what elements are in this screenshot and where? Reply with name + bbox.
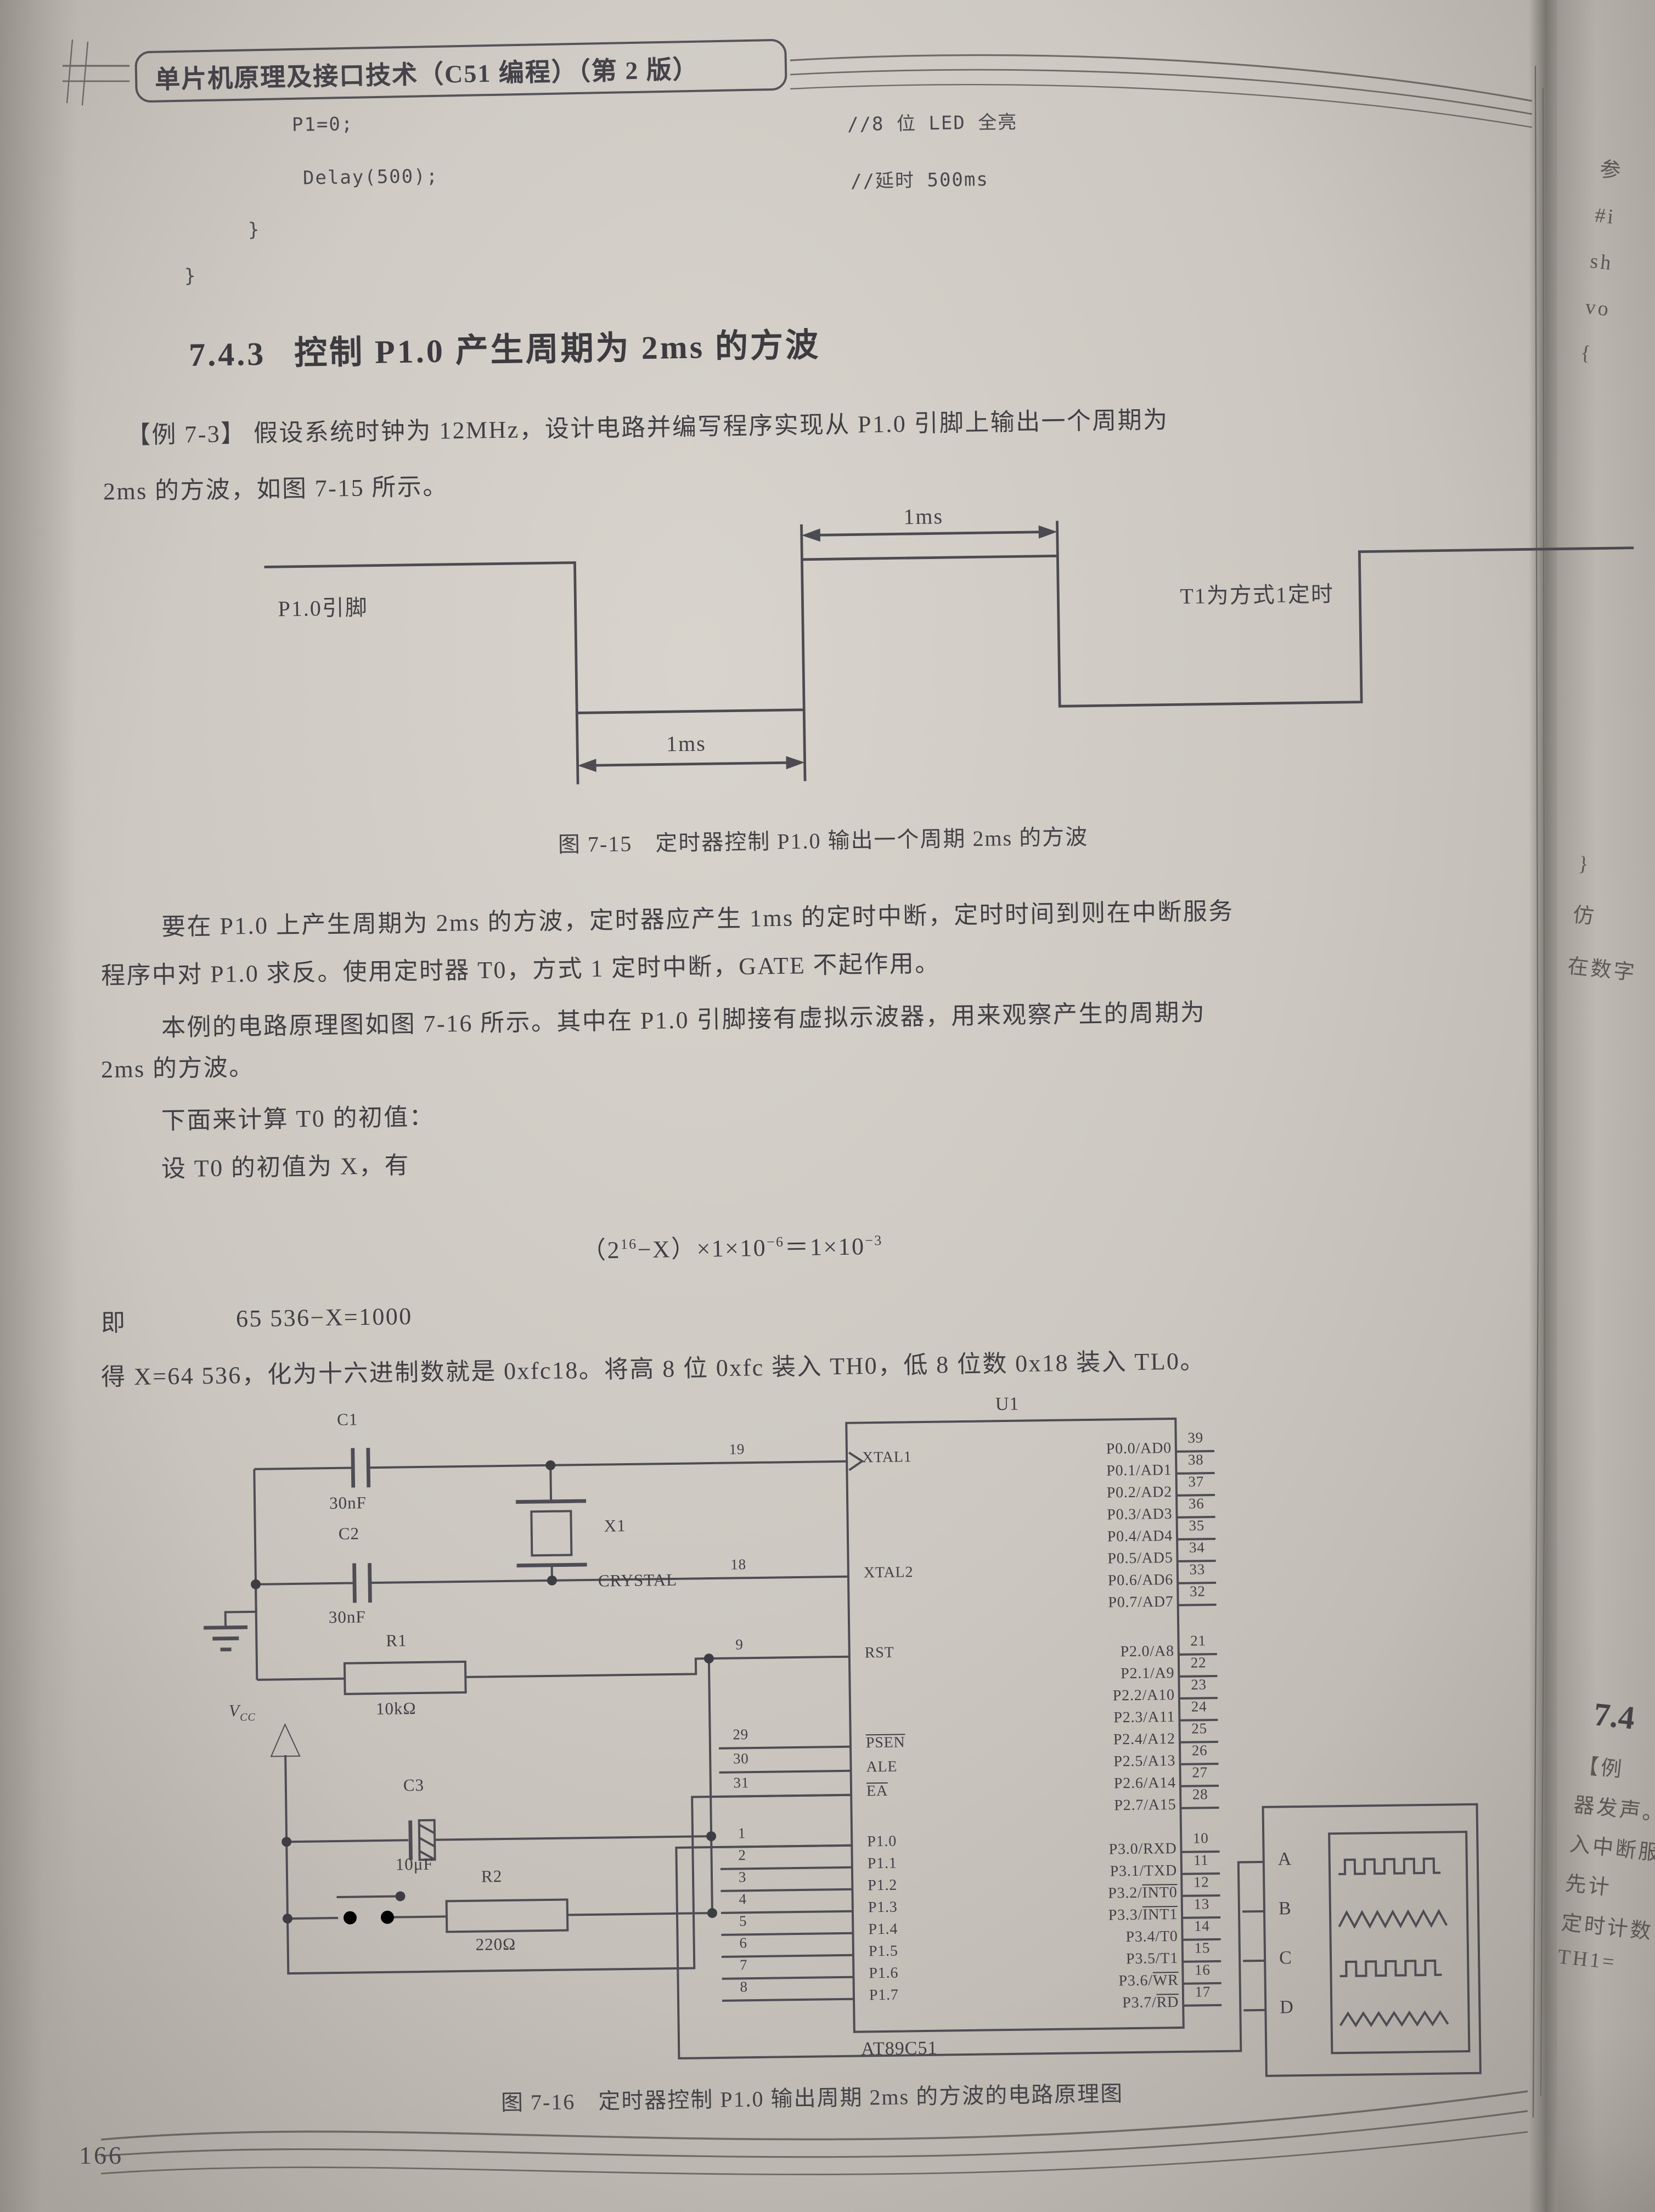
page-number: 166 [79, 2142, 123, 2170]
pin-name: P2.0/A8 [1032, 1644, 1174, 1663]
pin-number: 27 [1182, 1764, 1217, 1782]
pin-name: B [1279, 1898, 1303, 1920]
figure-7-15-waveform: P1.0引脚 T1为方式1定时 1ms 1ms [261, 504, 1643, 817]
para1-line-4: 2ms 的方波。 [101, 1048, 255, 1085]
next-page-fragment: 定时计数 [1560, 1906, 1655, 1945]
pin-name: P2.1/A9 [1032, 1666, 1174, 1685]
pin-number: 1 [722, 1825, 762, 1843]
vcc-label: VCC [229, 1702, 256, 1724]
pin-name: P0.2/AD2 [1029, 1485, 1172, 1504]
pin-number: 9 [719, 1636, 759, 1654]
pin-name: A [1277, 1848, 1302, 1871]
photographed-book-page: 单片机原理及接口技术（C51 编程）（第 2 版） P1=0; Delay(50… [0, 0, 1655, 2212]
x1-value: CRYSTAL [598, 1571, 678, 1592]
formula-exponent: −6 [767, 1233, 785, 1250]
pin-number: 37 [1179, 1473, 1214, 1491]
pin-name: P3.5/T1 [1035, 1951, 1178, 1970]
pin-name: P1.3 [868, 1898, 1000, 1917]
pin-number: 17 [1185, 1983, 1220, 2001]
code-line-2: Delay(500); [303, 166, 439, 189]
pin-number: 35 [1179, 1517, 1214, 1535]
vcc-v: V [229, 1702, 240, 1720]
pin-name: P0.3/AD3 [1029, 1506, 1172, 1526]
pin-name: P0.1/AD1 [1029, 1463, 1172, 1482]
pin-name: ALE [866, 1758, 998, 1777]
next-page-fragment: 入中断服 [1568, 1828, 1655, 1867]
next-page-fragment: #i [1594, 204, 1621, 231]
pin-number: 6 [723, 1934, 763, 1953]
figure-7-16-circuit: 19XTAL118XTAL29RST29PSEN30ALE31EA1P1.02P… [187, 1376, 1491, 2118]
pin-name: P0.7/AD7 [1031, 1594, 1173, 1613]
pin-number: 21 [1180, 1632, 1215, 1650]
pin-name: P0.4/AD4 [1030, 1528, 1173, 1548]
pin-name: PSEN [866, 1734, 998, 1753]
pin-name: C [1279, 1947, 1304, 1970]
chip-part-number: AT89C51 [861, 2038, 938, 2061]
code-comment-2: //延时 500ms [851, 163, 989, 193]
pin-name: P2.2/A10 [1032, 1688, 1175, 1707]
pin-number: 39 [1178, 1429, 1213, 1447]
pin-name: P1.4 [868, 1920, 1000, 1939]
pin-number: 16 [1185, 1961, 1220, 1979]
pin-number: 3 [723, 1869, 762, 1887]
r1-value: 10kΩ [376, 1700, 416, 1720]
pin-number: 25 [1181, 1720, 1217, 1738]
pin-number: 24 [1181, 1698, 1217, 1716]
pin-name: P3.3/INT1 [1035, 1907, 1178, 1926]
pin-name: P1.1 [868, 1854, 999, 1874]
pin-name: P2.6/A14 [1033, 1775, 1176, 1795]
pin-name: EA [866, 1782, 998, 1801]
book-spine-shadow [1529, 0, 1557, 2212]
example-line-2: 2ms 的方波，如图 7-15 所示。 [103, 467, 449, 507]
next-page-section-number: 7.4 [1592, 1696, 1637, 1737]
pin-number: 26 [1182, 1742, 1217, 1760]
pin-name: D [1280, 1996, 1304, 2019]
formula-exponent: −3 [865, 1232, 883, 1248]
pin-number: 14 [1184, 1917, 1219, 1936]
bottom-right-shading [1557, 2030, 1655, 2212]
c3-value: 10μF [396, 1855, 434, 1876]
code-brace-2: } [184, 266, 197, 287]
calc-line-1: 下面来计算 T0 的初值： [161, 1097, 435, 1136]
next-page-fragment: { [1579, 342, 1607, 369]
vcc-sub: CC [240, 1712, 256, 1724]
pin-number: 29 [720, 1726, 760, 1744]
pin-number: 12 [1184, 1874, 1219, 1892]
pin-name: XTAL2 [864, 1564, 995, 1583]
pin-name: P3.2/INT0 [1034, 1885, 1177, 1904]
next-page-fragment: 在数字 [1566, 950, 1638, 986]
pin-name: P1.7 [869, 1986, 1001, 2005]
pin-name: P0.6/AD6 [1031, 1572, 1173, 1592]
formula-part: −X）×1×10 [637, 1234, 767, 1263]
waveform-timer-label: T1为方式1定时 [1180, 576, 1334, 610]
pin-number: 36 [1179, 1495, 1214, 1513]
pin-name: P0.5/AD5 [1030, 1550, 1173, 1570]
pin-name: P1.6 [869, 1964, 1000, 1983]
dimension-top-1ms: 1ms [903, 505, 943, 531]
pin-label-layer: 19XTAL118XTAL29RST29PSEN30ALE31EA1P1.02P… [187, 1376, 1491, 2118]
code-brace-1: } [248, 219, 261, 241]
pin-name: P3.4/T0 [1035, 1929, 1178, 1948]
section-heading: 7.4.3控制 P1.0 产生周期为 2ms 的方波 [188, 318, 820, 376]
pin-name: P1.2 [868, 1876, 999, 1895]
page-left-edge-shading [0, 0, 77, 2212]
c3-ref: C3 [403, 1776, 425, 1796]
pin-number: 33 [1180, 1561, 1215, 1579]
pin-name: P2.7/A15 [1033, 1797, 1176, 1816]
pin-name: P1.5 [869, 1942, 1000, 1961]
c2-ref: C2 [339, 1525, 360, 1544]
pin-number: 18 [718, 1556, 758, 1574]
pin-number: 31 [722, 1774, 761, 1792]
next-page-fragment: 器发声。 [1572, 1788, 1655, 1827]
pin-number: 7 [724, 1956, 763, 1974]
pin-number: 4 [723, 1891, 762, 1909]
c1-value: 30nF [329, 1494, 367, 1514]
timer-initial-value-formula: （216−X）×1×10−6＝1×10−3 [582, 1227, 883, 1266]
then-equation: 65 536−X=1000 [236, 1302, 413, 1334]
pin-name: XTAL1 [862, 1448, 994, 1468]
pin-number: 15 [1185, 1939, 1220, 1957]
pin-number: 23 [1181, 1676, 1216, 1694]
next-page-fragment: sh [1589, 250, 1616, 277]
next-page-fragment: 先计 [1564, 1867, 1655, 1906]
c2-value: 30nF [329, 1608, 366, 1628]
waveform-pin-label: P1.0引脚 [278, 590, 368, 623]
formula-part: （2 [582, 1236, 621, 1264]
formula-exponent: 16 [620, 1235, 637, 1252]
next-page-fragment: vo [1584, 296, 1612, 323]
c1-ref: C1 [337, 1410, 358, 1430]
pin-name: P2.4/A12 [1033, 1731, 1175, 1751]
x1-ref: X1 [604, 1517, 626, 1537]
code-comment-1: //8 位 LED 全亮 [847, 106, 1018, 136]
pin-name: P3.6/WR [1035, 1973, 1178, 1992]
chip-ref: U1 [995, 1393, 1020, 1416]
waveform-drawing [261, 504, 1643, 817]
pin-name: RST [865, 1644, 997, 1663]
r2-value: 220Ω [475, 1936, 516, 1956]
pin-number: 19 [717, 1441, 757, 1459]
pin-number: 13 [1184, 1895, 1219, 1914]
pin-name: P2.3/A11 [1032, 1709, 1175, 1729]
pin-number: 8 [724, 1978, 764, 1996]
next-page-fragment: 参 [1598, 153, 1626, 185]
r1-ref: R1 [386, 1632, 407, 1651]
pin-name: P3.7/RD [1036, 1995, 1179, 2014]
section-title: 控制 P1.0 产生周期为 2ms 的方波 [294, 328, 821, 372]
pin-name: P3.0/RXD [1034, 1841, 1176, 1860]
pin-name: P3.1/TXD [1034, 1863, 1177, 1882]
section-number: 7.4.3 [189, 336, 266, 374]
formula-part: ＝1×10 [784, 1232, 865, 1261]
pin-number: 38 [1178, 1451, 1213, 1469]
calc-line-2: 设 T0 的初值为 X，有 [161, 1146, 410, 1185]
pin-number: 34 [1179, 1539, 1214, 1557]
pin-number: 10 [1183, 1830, 1218, 1848]
then-label: 即 [101, 1304, 127, 1339]
pin-name: P2.5/A13 [1033, 1753, 1175, 1773]
pin-number: 30 [721, 1750, 761, 1768]
dimension-bottom-1ms: 1ms [666, 732, 706, 758]
pin-number: 22 [1181, 1654, 1216, 1672]
pin-number: 2 [722, 1847, 762, 1865]
pin-name: P1.0 [867, 1832, 999, 1852]
pin-name: P0.0/AD0 [1029, 1441, 1172, 1460]
pin-number: 5 [723, 1912, 763, 1931]
book-title: 单片机原理及接口技术（C51 编程）（第 2 版） [154, 48, 699, 95]
code-line-1: P1=0; [292, 114, 354, 137]
pin-number: 11 [1184, 1852, 1219, 1870]
next-page-fragment: TH1= [1556, 1945, 1651, 1979]
pin-number: 28 [1183, 1786, 1218, 1804]
next-page-fragment: 仿 [1572, 899, 1643, 935]
r2-ref: R2 [481, 1867, 503, 1887]
pin-number: 32 [1180, 1583, 1215, 1601]
